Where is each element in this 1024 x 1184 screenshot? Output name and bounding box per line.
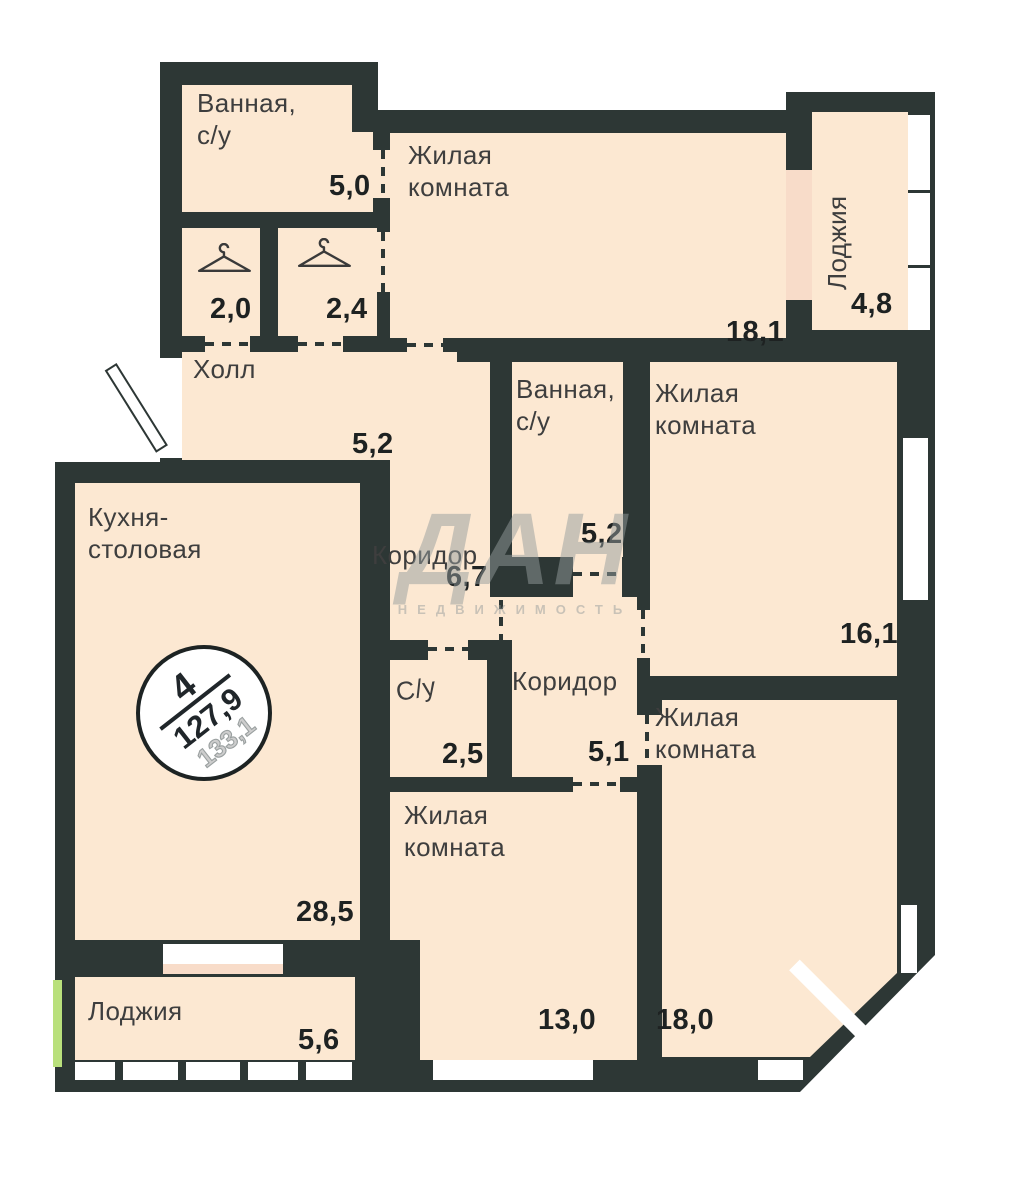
balcony-door-top-loggia xyxy=(786,170,812,300)
door-dash-living-top xyxy=(407,343,443,347)
room-area-kitchen: 28,5 xyxy=(296,898,354,927)
wall-bathroom-notch xyxy=(352,85,373,132)
door-dash-corridors xyxy=(499,600,503,640)
room-label-hall: Холл xyxy=(193,354,256,386)
room-area-loggia-bottom: 5,6 xyxy=(298,1026,340,1055)
door-dash-wardrobe-right xyxy=(298,342,343,346)
door-dash-bathroom-top xyxy=(381,150,385,198)
room-label-wc: С/у xyxy=(394,671,439,709)
room-area-living-top: 18,1 xyxy=(726,318,784,347)
kitchen-loggia-sill xyxy=(163,964,283,974)
room-area-wardrobe-right: 2,4 xyxy=(326,295,368,324)
room-label-loggia-top: Лоджия xyxy=(822,195,854,290)
room-label-living-bottom-right: Жилая комната xyxy=(655,702,756,765)
room-area-living-bottom-right: 18,0 xyxy=(656,1006,714,1035)
door-dash-wardrobe-right-side xyxy=(381,232,385,292)
room-area-corridor-upper: 6,7 xyxy=(446,563,488,592)
hanger-icon xyxy=(196,243,254,275)
door-dash-living-bottom xyxy=(573,782,620,786)
door-gap xyxy=(573,557,622,597)
apartment-info: 4 127,9 133,1 xyxy=(138,646,269,779)
room-label-living-bottom: Жилая комната xyxy=(404,800,505,863)
room-label-kitchen: Кухня- столовая xyxy=(88,502,202,565)
window-loggia-bottom-mullion xyxy=(240,1062,248,1080)
window-bay-side xyxy=(901,905,917,973)
window-loggia-top xyxy=(908,115,930,330)
window-loggia-top-mullion xyxy=(908,265,930,268)
room-label-corridor-lower: Коридор xyxy=(512,666,617,698)
room-area-living-bottom: 13,0 xyxy=(538,1006,596,1035)
room-area-hall: 5,2 xyxy=(352,430,394,459)
window-loggia-bottom-mullion xyxy=(298,1062,306,1080)
room-area-living-right: 16,1 xyxy=(840,620,898,649)
room-label-living-top: Жилая комната xyxy=(408,140,509,203)
room-label-bathroom-middle: Ванная, с/у xyxy=(516,374,615,437)
adjacent-section-marker xyxy=(53,980,62,1067)
wall-loggia-column xyxy=(355,940,420,1092)
window-living-right xyxy=(903,438,928,600)
window-living-bottom xyxy=(433,1060,593,1080)
room-area-corridor-lower: 5,1 xyxy=(588,738,630,767)
room-area-bathroom-top: 5,0 xyxy=(329,172,371,201)
door-dash-living-right xyxy=(641,610,645,658)
window-loggia-bottom-mullion xyxy=(178,1062,186,1080)
door-dash-living-bottom-right xyxy=(645,715,649,765)
room-label-bathroom-top: Ванная, с/у xyxy=(197,88,296,151)
room-area-wardrobe-left: 2,0 xyxy=(210,295,252,324)
door-dash-bathroom-middle xyxy=(573,572,622,576)
floor-plan: Ванная, с/у Жилая комната Лоджия Холл Ку… xyxy=(0,0,1024,1184)
door-dash-wc xyxy=(428,647,468,651)
room-area-bathroom-middle: 5,2 xyxy=(581,520,623,549)
window-loggia-bottom-mullion xyxy=(115,1062,123,1080)
room-area-wc: 2,5 xyxy=(442,740,484,769)
room-label-loggia-bottom: Лоджия xyxy=(88,996,183,1028)
window-loggia-top-mullion xyxy=(908,190,930,193)
room-area-loggia-top: 4,8 xyxy=(851,290,893,319)
apartment-info-badge: 4 127,9 133,1 xyxy=(136,645,272,781)
room-corridor-lower-floor-a xyxy=(490,597,637,640)
door-dash-wardrobe-left xyxy=(205,342,250,346)
window-kitchen-loggia xyxy=(163,944,283,964)
wall-hall-step xyxy=(457,352,512,362)
hanger-icon xyxy=(296,238,354,270)
window-living-bottom-right xyxy=(758,1060,803,1080)
room-label-living-right: Жилая комната xyxy=(655,378,756,441)
